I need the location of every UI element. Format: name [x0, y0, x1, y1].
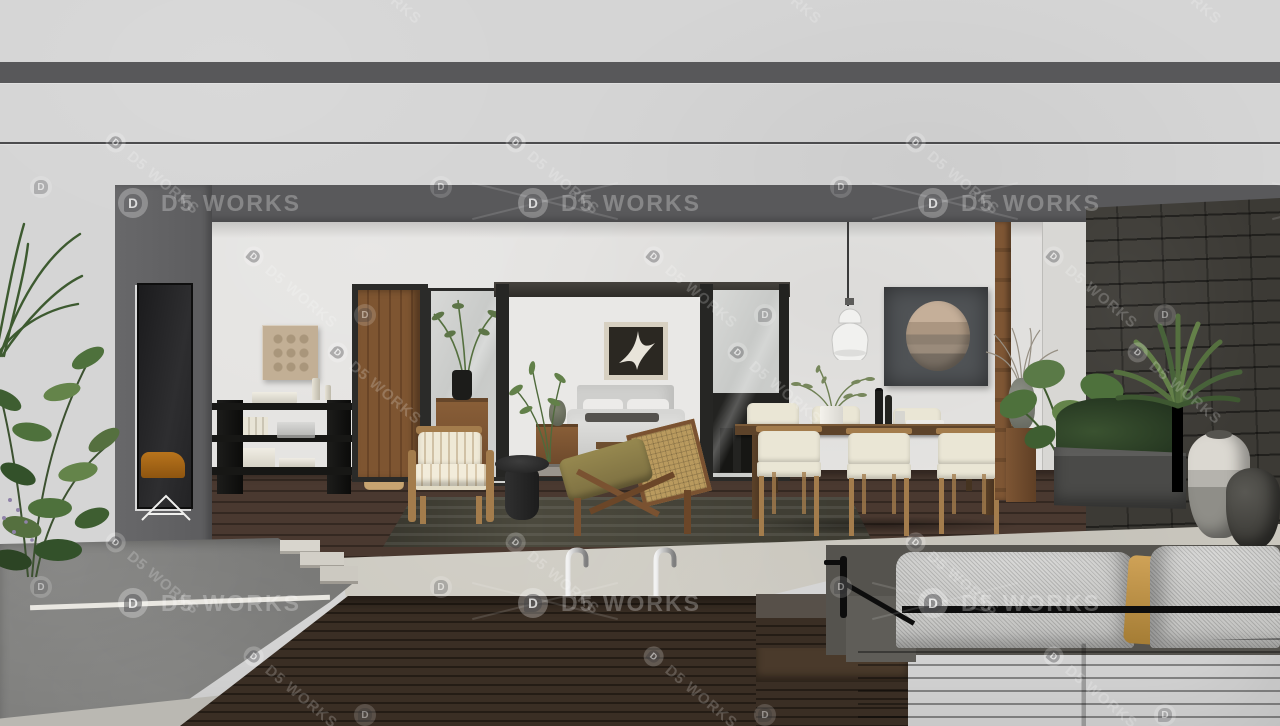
dining-chair-2	[846, 428, 914, 540]
shelf-post-right	[327, 400, 351, 494]
ceiling-fascia	[115, 185, 1093, 222]
chair-back-cushion	[938, 433, 1000, 465]
interior-wall-top-shadow	[212, 222, 1090, 238]
side-table-top	[495, 455, 549, 473]
leafy-plant	[0, 322, 122, 582]
stereo-receiver	[277, 422, 315, 438]
railing-top-bar	[902, 606, 1280, 613]
lounge-leg-back	[684, 490, 691, 534]
wall-dark-band	[0, 62, 1280, 83]
pendant-lamp	[830, 298, 870, 360]
sofa-slat-base	[858, 638, 1280, 726]
chair-leg	[772, 472, 776, 514]
concrete-step-3	[320, 566, 358, 584]
chair-leg	[904, 478, 909, 536]
dining-chair-1	[756, 426, 824, 538]
lounge-leg-front	[574, 498, 581, 536]
chair-leg	[939, 478, 944, 534]
dining-chair-3	[936, 428, 1004, 538]
chair-leg	[982, 474, 986, 514]
chair-leg	[849, 478, 854, 536]
sofa-back-cushion-right	[1150, 546, 1280, 648]
shelf-console	[279, 458, 315, 467]
chair-seat	[937, 464, 1001, 479]
chair-seat	[847, 464, 911, 479]
chair-leg	[862, 474, 866, 514]
sofa-back-cushion-left	[896, 552, 1134, 648]
shelf-books-top	[252, 392, 297, 403]
candlestick-tall	[312, 378, 320, 400]
urn-dark	[1226, 468, 1280, 548]
drinking-glass	[895, 411, 905, 424]
chair-back-cushion	[848, 433, 910, 465]
armchair-back-cushion	[418, 432, 482, 468]
armchair-leg-right	[476, 496, 482, 524]
moon-artwork-circle	[906, 301, 970, 371]
armchair-arm-right	[486, 450, 494, 522]
armchair-seat-cushion	[414, 464, 488, 490]
candlestick-short	[325, 385, 331, 400]
shelf-books-mid	[243, 417, 268, 435]
av-shelf-unit	[205, 390, 360, 494]
urn-light-rim	[1206, 430, 1232, 439]
wire-hanger-stand	[138, 494, 194, 522]
mirror-amber-bench	[141, 452, 185, 478]
shelf-low	[205, 467, 360, 475]
wine-bottle-2	[885, 395, 892, 424]
chair-leg	[802, 472, 806, 514]
side-table-body	[505, 468, 539, 520]
chair-leg	[759, 476, 764, 536]
circle-grid-artwork	[262, 325, 318, 380]
armchair	[406, 424, 500, 524]
wine-bottle-1	[875, 388, 883, 424]
armchair-leg-left	[420, 496, 426, 524]
chair-back-cushion	[758, 431, 820, 463]
chair-leg	[892, 474, 896, 514]
shelf-post-left	[217, 400, 243, 494]
bed-artwork	[604, 322, 668, 380]
chair-seat	[757, 462, 821, 477]
black-vase	[452, 370, 472, 400]
wall-reveal-line	[0, 142, 1280, 144]
chair-leg	[952, 474, 956, 514]
shelf-box	[243, 448, 275, 467]
lounge-chair	[556, 420, 708, 538]
armchair-arm-left	[408, 450, 416, 522]
shelf-top	[205, 403, 360, 410]
chair-leg	[814, 476, 819, 536]
render-canvas: DD5 WORKSDD5 WORKSDD5 WORKSDD5 WORKSDDDD…	[0, 0, 1280, 726]
